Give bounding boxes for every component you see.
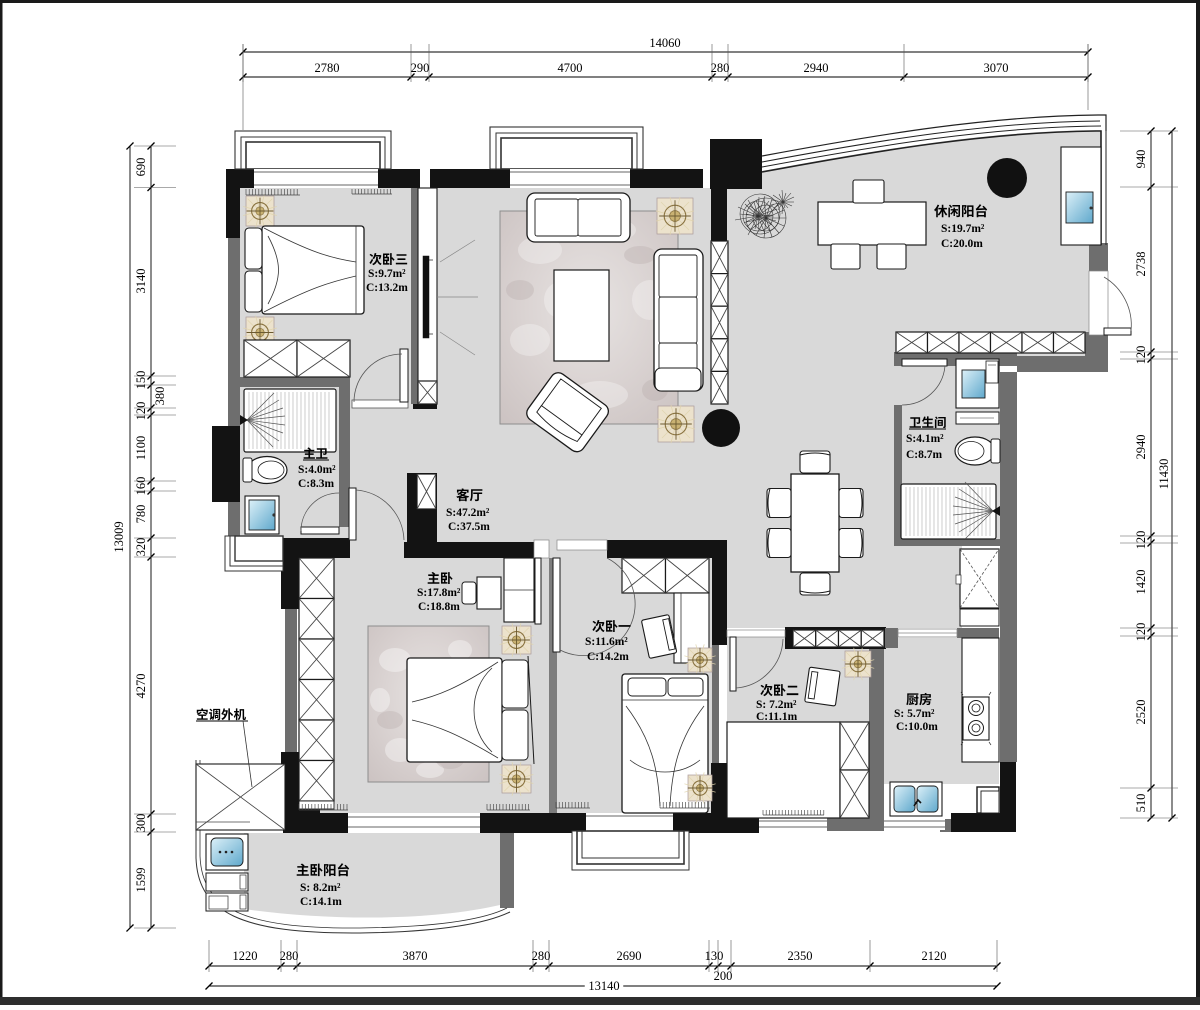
svg-text:C:11.1m: C:11.1m <box>756 711 798 723</box>
svg-text:3140: 3140 <box>134 269 148 294</box>
svg-text:2738: 2738 <box>1134 252 1148 277</box>
svg-text:320: 320 <box>134 538 148 557</box>
svg-text:2780: 2780 <box>315 61 340 75</box>
svg-text:C:10.0m: C:10.0m <box>896 721 938 733</box>
svg-text:2120: 2120 <box>922 949 947 963</box>
svg-text:C:37.5m: C:37.5m <box>448 521 490 533</box>
svg-text:C:14.1m: C:14.1m <box>300 896 342 908</box>
svg-text:4700: 4700 <box>558 61 583 75</box>
svg-text:2940: 2940 <box>1134 435 1148 460</box>
svg-text:940: 940 <box>1134 150 1148 169</box>
svg-text:C:18.8m: C:18.8m <box>418 601 460 613</box>
svg-text:4270: 4270 <box>134 674 148 699</box>
svg-text:2520: 2520 <box>1134 700 1148 725</box>
svg-text:C:14.2m: C:14.2m <box>587 651 629 663</box>
svg-text:120: 120 <box>1134 531 1148 550</box>
svg-text:280: 280 <box>532 949 551 963</box>
svg-text:2690: 2690 <box>617 949 642 963</box>
svg-text:14060: 14060 <box>649 36 680 50</box>
svg-text:160: 160 <box>134 477 148 496</box>
svg-text:S:19.7m²: S:19.7m² <box>941 223 985 235</box>
svg-text:C:20.0m: C:20.0m <box>941 238 983 250</box>
svg-text:3870: 3870 <box>403 949 428 963</box>
svg-text:120: 120 <box>134 402 148 421</box>
svg-text:2350: 2350 <box>788 949 813 963</box>
svg-text:S:17.8m²: S:17.8m² <box>417 587 461 599</box>
svg-text:120: 120 <box>1134 623 1148 642</box>
svg-text:510: 510 <box>1134 794 1148 813</box>
svg-text:S:11.6m²: S:11.6m² <box>585 636 628 648</box>
svg-text:S: 7.2m²: S: 7.2m² <box>756 699 797 711</box>
svg-text:1220: 1220 <box>233 949 258 963</box>
svg-text:380: 380 <box>153 387 167 406</box>
svg-text:13140: 13140 <box>588 979 619 993</box>
svg-text:C:13.2m: C:13.2m <box>366 282 408 294</box>
svg-text:130: 130 <box>705 949 724 963</box>
svg-text:780: 780 <box>134 505 148 524</box>
svg-text:150: 150 <box>134 371 148 390</box>
svg-text:S:9.7m²: S:9.7m² <box>368 268 406 280</box>
svg-text:3070: 3070 <box>984 61 1009 75</box>
svg-text:11430: 11430 <box>1157 459 1171 490</box>
svg-text:120: 120 <box>1134 346 1148 365</box>
svg-text:690: 690 <box>134 158 148 177</box>
svg-text:1420: 1420 <box>1134 570 1148 595</box>
svg-text:C:8.3m: C:8.3m <box>298 478 335 490</box>
svg-text:2940: 2940 <box>804 61 829 75</box>
svg-text:280: 280 <box>711 61 730 75</box>
svg-text:1599: 1599 <box>134 868 148 893</box>
svg-text:S:4.1m²: S:4.1m² <box>906 433 944 445</box>
svg-text:13009: 13009 <box>112 521 126 552</box>
svg-text:S:4.0m²: S:4.0m² <box>298 464 336 476</box>
svg-text:290: 290 <box>411 61 430 75</box>
svg-text:S: 5.7m²: S: 5.7m² <box>894 708 935 720</box>
svg-text:1100: 1100 <box>134 436 148 461</box>
svg-text:S: 8.2m²: S: 8.2m² <box>300 882 341 894</box>
svg-text:280: 280 <box>280 949 299 963</box>
svg-text:300: 300 <box>134 814 148 833</box>
svg-text:C:8.7m: C:8.7m <box>906 449 943 461</box>
svg-text:200: 200 <box>714 969 733 983</box>
svg-text:S:47.2m²: S:47.2m² <box>446 507 490 519</box>
